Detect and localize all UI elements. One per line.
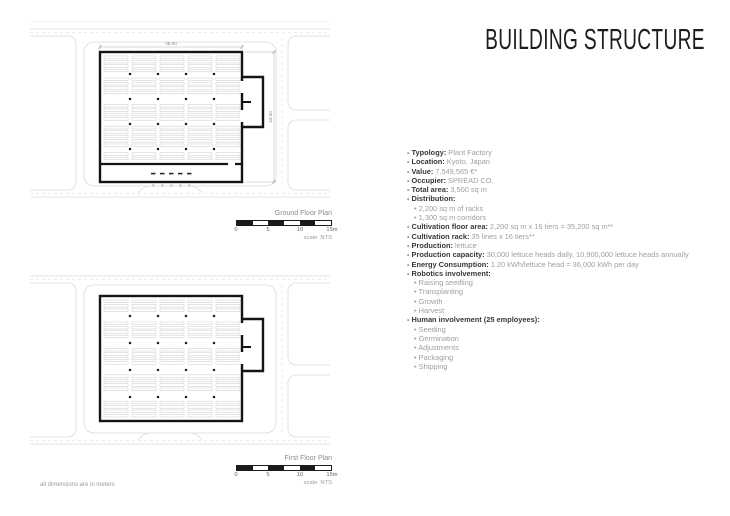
- spec-bullet-item: Germination: [407, 334, 729, 343]
- spec-label: Occupier:: [412, 176, 447, 185]
- annex-outline: [242, 319, 263, 371]
- spec-bullet-item: Growth: [407, 297, 729, 306]
- scale-tick-label: 0: [234, 472, 237, 478]
- scale-bar-segment: [268, 221, 284, 225]
- plan-title: Ground Floor Plan: [236, 210, 332, 217]
- spec-bullet-item: Seeding: [407, 325, 729, 334]
- spec-label: Typology:: [412, 148, 447, 157]
- ground-floor-plan-drawing: 48.0043.00: [30, 14, 330, 206]
- spec-item: Typology:Plant Factory: [407, 148, 729, 157]
- spec-label: Distribution:: [412, 194, 456, 203]
- spec-value: Plant Factory: [448, 148, 492, 157]
- spec-label: Location:: [412, 157, 445, 166]
- scale-bar: [236, 465, 332, 471]
- sheet-page: BUILDING STRUCTURE 48.0043.00 Ground Flo…: [0, 0, 730, 516]
- spec-list: Typology:Plant FactoryLocation:Kyoto, Ja…: [407, 148, 729, 371]
- scale-tick-label: 5: [266, 472, 269, 478]
- scale-tick-label: 5: [266, 227, 269, 233]
- spec-item: Occupier:SPREAD CO.: [407, 176, 729, 185]
- scale-bar: [236, 220, 332, 226]
- spec-bullet-item: Adjustments: [407, 343, 729, 352]
- scale-bar-segment: [237, 221, 253, 225]
- spec-label: Production capacity:: [412, 250, 485, 259]
- spec-label: Cultivation rack:: [412, 232, 470, 241]
- spec-item: Distribution:: [407, 194, 729, 203]
- spec-item: Human involvement (25 employees):: [407, 315, 729, 324]
- spec-label: Value:: [412, 167, 434, 176]
- spec-value: 1.20 kWh/lettuce head = 36,000 kWh per d…: [491, 260, 639, 269]
- spec-item: Production capacity:30,000 lettuce heads…: [407, 250, 729, 259]
- spec-value: SPREAD CO.: [448, 176, 494, 185]
- scale-bar-segment: [253, 221, 269, 225]
- scale-bar-segment: [315, 221, 331, 225]
- first-floor-scale-bar: First Floor Plan051015mscale: NTS: [236, 455, 332, 486]
- scale-tick-labels: 051015m: [236, 227, 332, 234]
- scale-note: scale: NTS: [236, 480, 332, 486]
- scale-bar-segment: [300, 466, 316, 470]
- scale-bar-segment: [268, 466, 284, 470]
- spec-bullet-item: Shipping: [407, 362, 729, 371]
- first-floor-plan-svg: [30, 261, 330, 453]
- first-floor-plan-drawing: [30, 261, 330, 453]
- spec-item: Cultivation floor area:2,200 sq m x 16 t…: [407, 222, 729, 231]
- scale-bar-segment: [284, 466, 300, 470]
- scale-bar-segment: [237, 466, 253, 470]
- spec-value: 2,200 sq m x 16 tiers = 35,200 sq m**: [490, 222, 613, 231]
- dimensions-footnote: all dimensions are in meters: [40, 482, 115, 488]
- scale-tick-label: 15m: [326, 227, 337, 233]
- plan-title: First Floor Plan: [236, 455, 332, 462]
- spec-item: Total area:3,500 sq m: [407, 185, 729, 194]
- spec-value: 3,500 sq m: [450, 185, 487, 194]
- ground-floor-scale-bar: Ground Floor Plan051015mscale: NTS: [236, 210, 332, 241]
- spec-label: Robotics involvement:: [412, 269, 491, 278]
- page-title: BUILDING STRUCTURE: [485, 24, 705, 57]
- spec-item: Value:7,549,565 €*: [407, 167, 729, 176]
- scale-bar-segment: [253, 466, 269, 470]
- scale-note: scale: NTS: [236, 235, 332, 241]
- spec-value: lettuce: [455, 241, 477, 250]
- scale-tick-label: 10: [297, 227, 303, 233]
- spec-bullet-item: 1,300 sq m corridors: [407, 213, 729, 222]
- spec-value: 7,549,565 €*: [435, 167, 477, 176]
- cultivation-racks: [104, 300, 240, 417]
- annex-outline: [242, 77, 263, 127]
- spec-label: Human involvement (25 employees):: [412, 315, 540, 324]
- spec-bullet-item: Raising seedling: [407, 278, 729, 287]
- spec-label: Production:: [412, 241, 453, 250]
- scale-bar-segment: [300, 221, 316, 225]
- spec-value: 35 lines x 16 tiers**: [471, 232, 534, 241]
- ground-floor-plan-svg: 48.0043.00: [30, 14, 330, 206]
- dimension-height-label: 43.00: [268, 111, 273, 123]
- scale-tick-label: 0: [234, 227, 237, 233]
- spec-value: Kyoto, Japan: [447, 157, 490, 166]
- scale-tick-label: 10: [297, 472, 303, 478]
- spec-item: Cultivation rack:35 lines x 16 tiers**: [407, 232, 729, 241]
- scale-tick-label: 15m: [326, 472, 337, 478]
- spec-bullet-item: Transplanting: [407, 287, 729, 296]
- cultivation-racks: [104, 56, 240, 160]
- spec-bullet-item: 2,200 sq m of racks: [407, 204, 729, 213]
- spec-item: Location:Kyoto, Japan: [407, 157, 729, 166]
- spec-label: Energy Consumption:: [412, 260, 489, 269]
- entrance-doors: [151, 173, 192, 188]
- scale-bar-segment: [284, 221, 300, 225]
- dimension-width-label: 48.00: [165, 41, 177, 46]
- spec-item: Robotics involvement:: [407, 269, 729, 278]
- scale-tick-labels: 051015m: [236, 472, 332, 479]
- spec-bullet-item: Packaging: [407, 353, 729, 362]
- spec-label: Cultivation floor area:: [412, 222, 488, 231]
- spec-label: Total area:: [412, 185, 449, 194]
- spec-item: Production:lettuce: [407, 241, 729, 250]
- spec-value: 30,000 lettuce heads daily, 10,900,000 l…: [487, 250, 689, 259]
- spec-bullet-item: Harvest: [407, 306, 729, 315]
- scale-bar-segment: [315, 466, 331, 470]
- spec-item: Energy Consumption:1.20 kWh/lettuce head…: [407, 260, 729, 269]
